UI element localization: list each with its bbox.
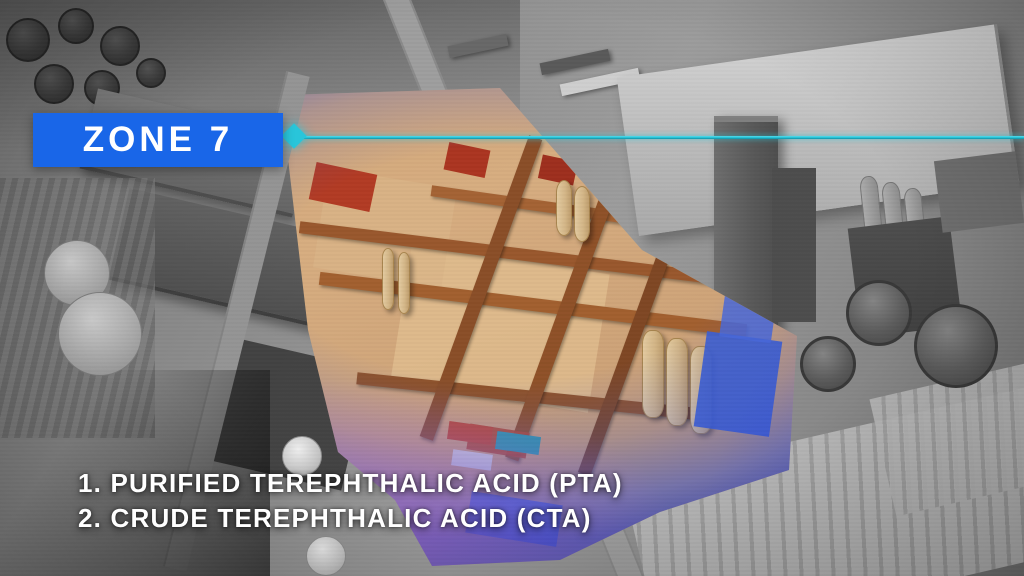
- aerial-photo-frame: ZONE 7 1. PURIFIED TEREPHTHALIC ACID (PT…: [0, 0, 1024, 576]
- product-list-item: 1. PURIFIED TEREPHTHALIC ACID (PTA): [78, 466, 623, 501]
- product-list: 1. PURIFIED TEREPHTHALIC ACID (PTA) 2. C…: [78, 466, 623, 536]
- zone-badge-label: ZONE 7: [83, 120, 233, 160]
- product-list-item: 2. CRUDE TEREPHTHALIC ACID (CTA): [78, 501, 623, 536]
- callout-line: [294, 136, 1024, 139]
- zone-badge: ZONE 7: [33, 113, 283, 167]
